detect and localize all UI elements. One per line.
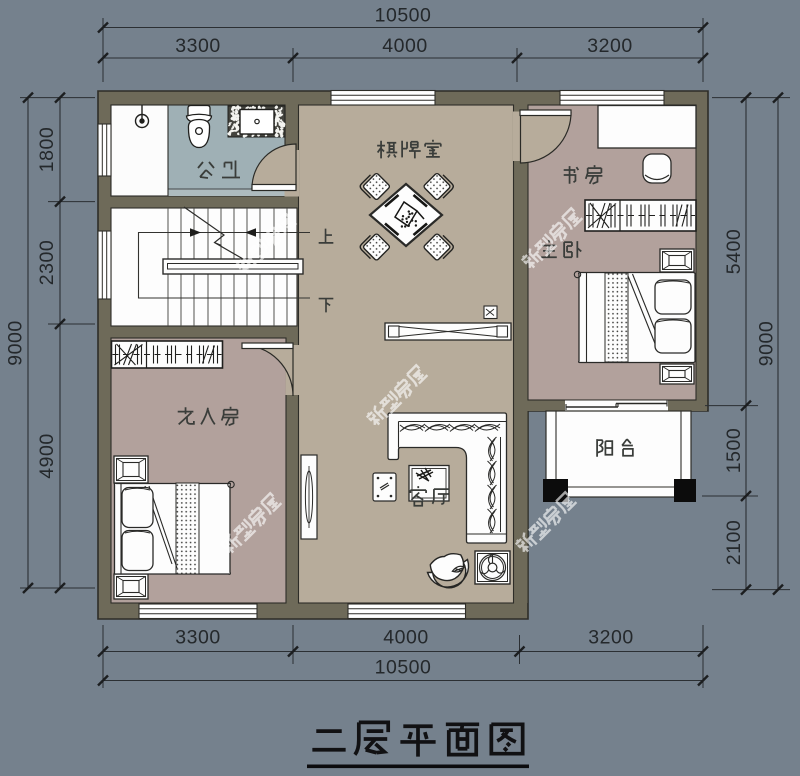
svg-text:3200: 3200	[588, 626, 633, 648]
svg-text:3300: 3300	[175, 626, 220, 648]
svg-text:9000: 9000	[755, 321, 777, 366]
svg-text:2100: 2100	[723, 520, 745, 565]
svg-text:10500: 10500	[375, 4, 432, 26]
svg-text:5400: 5400	[723, 229, 745, 274]
svg-text:10500: 10500	[375, 656, 432, 678]
svg-text:9000: 9000	[4, 320, 26, 365]
svg-text:3300: 3300	[175, 35, 220, 57]
svg-text:2300: 2300	[36, 240, 58, 285]
svg-text:1500: 1500	[723, 428, 745, 473]
svg-text:4000: 4000	[382, 35, 427, 57]
svg-text:4000: 4000	[383, 626, 428, 648]
svg-text:4900: 4900	[36, 433, 58, 478]
svg-text:3200: 3200	[587, 35, 632, 57]
svg-text:1800: 1800	[36, 127, 58, 172]
